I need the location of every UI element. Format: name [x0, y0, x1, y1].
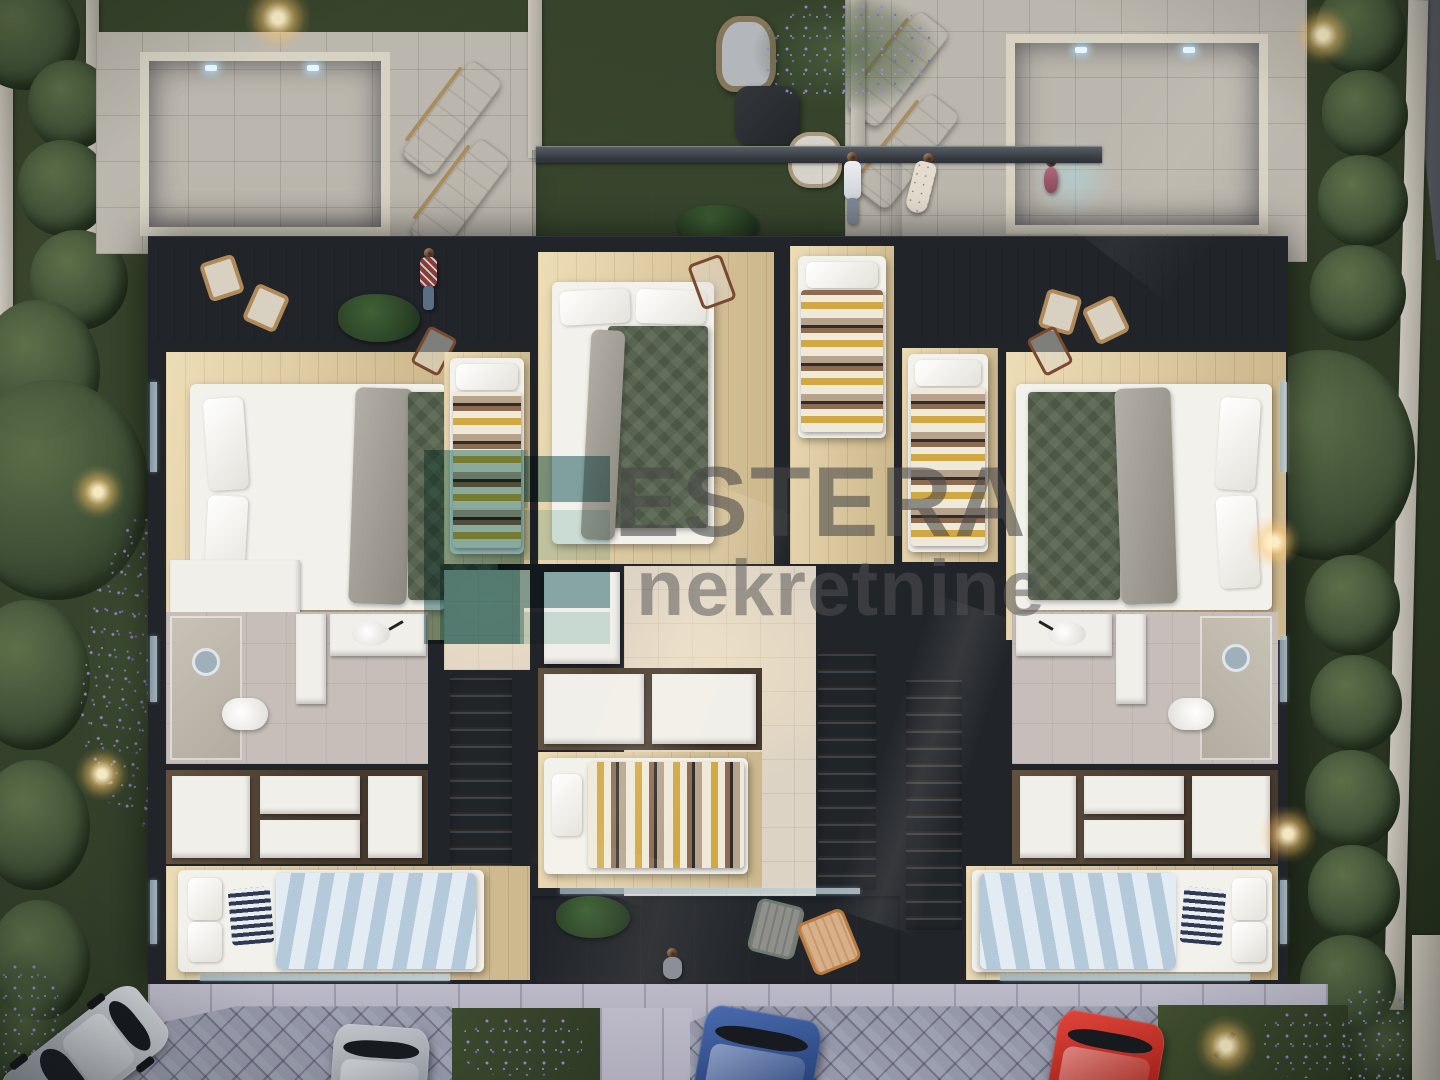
pool-light	[1075, 47, 1087, 53]
bottom-right-wall	[1412, 935, 1440, 1080]
bed-pillow	[559, 288, 631, 326]
watermark-subtitle-text: nekretnine	[636, 548, 1046, 627]
shower-area	[1200, 616, 1272, 760]
shower-head	[1222, 644, 1250, 672]
man-on-left-terrace	[416, 248, 442, 318]
bush	[1308, 845, 1400, 940]
window	[1280, 636, 1287, 702]
closet-shelf	[260, 776, 360, 814]
garden-light	[1260, 806, 1316, 862]
sliding-door	[1000, 974, 1250, 981]
render-scene: ESTERA nekretnine	[0, 0, 1440, 1080]
left-staircase	[450, 676, 512, 890]
watermark-brand-text: ESTERA	[614, 452, 1028, 551]
person-on-walkway	[658, 944, 686, 986]
closet-shelf	[1020, 776, 1076, 858]
pool-light	[205, 65, 217, 71]
bush	[1310, 245, 1406, 341]
pool-light	[307, 65, 319, 71]
bathroom-partition	[296, 614, 326, 704]
logo-block	[524, 612, 610, 644]
closet-shelf	[260, 820, 360, 858]
garden-light	[76, 748, 128, 800]
sliding-door	[200, 974, 450, 981]
blue-striped-duvet	[276, 873, 476, 969]
closet-shelf	[368, 776, 422, 858]
lavender-driveway	[1262, 1008, 1348, 1078]
logo-block	[524, 456, 610, 502]
garden-light	[246, 0, 310, 50]
lamp-glow	[1196, 1016, 1256, 1076]
woman-on-balcony	[838, 152, 866, 236]
garden-light	[1294, 6, 1352, 64]
logo-block	[440, 564, 520, 644]
window	[150, 382, 157, 472]
bed-pillow	[188, 922, 222, 962]
bed-pillow	[456, 364, 518, 390]
lavender-driveway	[462, 1014, 582, 1076]
window	[1280, 880, 1287, 944]
closet-shelf	[1192, 776, 1270, 858]
closet-shelf	[172, 776, 250, 858]
bed-pillow	[915, 360, 981, 386]
grey-car	[325, 1023, 431, 1080]
watermark-logo	[424, 446, 624, 648]
left-closet-room	[166, 770, 428, 864]
left-pool	[140, 52, 390, 236]
shower-area	[170, 616, 242, 760]
bed-pillow	[1232, 878, 1266, 920]
window	[1280, 382, 1287, 472]
wash-basin	[352, 622, 390, 646]
shower-head	[192, 648, 220, 676]
window	[150, 880, 157, 944]
bush	[1310, 655, 1402, 751]
closet-shelf	[1084, 776, 1184, 814]
bed-throw	[348, 387, 414, 605]
navy-striped-cushion	[228, 886, 275, 945]
toilet	[1168, 698, 1214, 730]
bed-pillow	[1215, 397, 1261, 492]
bush	[1305, 750, 1400, 848]
bush	[1318, 155, 1408, 247]
bush	[1322, 70, 1408, 158]
wash-basin	[1048, 622, 1086, 646]
garden-fence-left	[528, 0, 542, 158]
bathroom-partition	[1116, 614, 1146, 704]
garden-light	[1248, 516, 1300, 568]
bush	[1305, 555, 1400, 655]
bed-pillow	[806, 262, 878, 288]
navy-striped-cushion	[1180, 886, 1227, 945]
bed-pillow	[635, 289, 706, 325]
terrace-plant	[338, 294, 420, 342]
garden-light	[72, 466, 124, 518]
logo-block	[424, 450, 528, 508]
bed-pillow	[188, 878, 222, 920]
logo-block	[524, 564, 610, 608]
bed-throw	[1114, 387, 1178, 605]
bed-pillow	[203, 397, 249, 492]
window	[150, 636, 157, 702]
lavender-garden	[762, 0, 932, 105]
toilet	[222, 698, 268, 730]
blue-striped-duvet	[980, 873, 1176, 969]
right-closet-room	[1012, 770, 1278, 864]
entry-path	[600, 1008, 692, 1080]
striped-duvet	[801, 290, 883, 432]
glass-balustrade	[536, 146, 1102, 163]
closet-shelf	[1084, 820, 1184, 858]
logo-block	[440, 510, 610, 560]
bed-pillow	[1232, 922, 1266, 962]
